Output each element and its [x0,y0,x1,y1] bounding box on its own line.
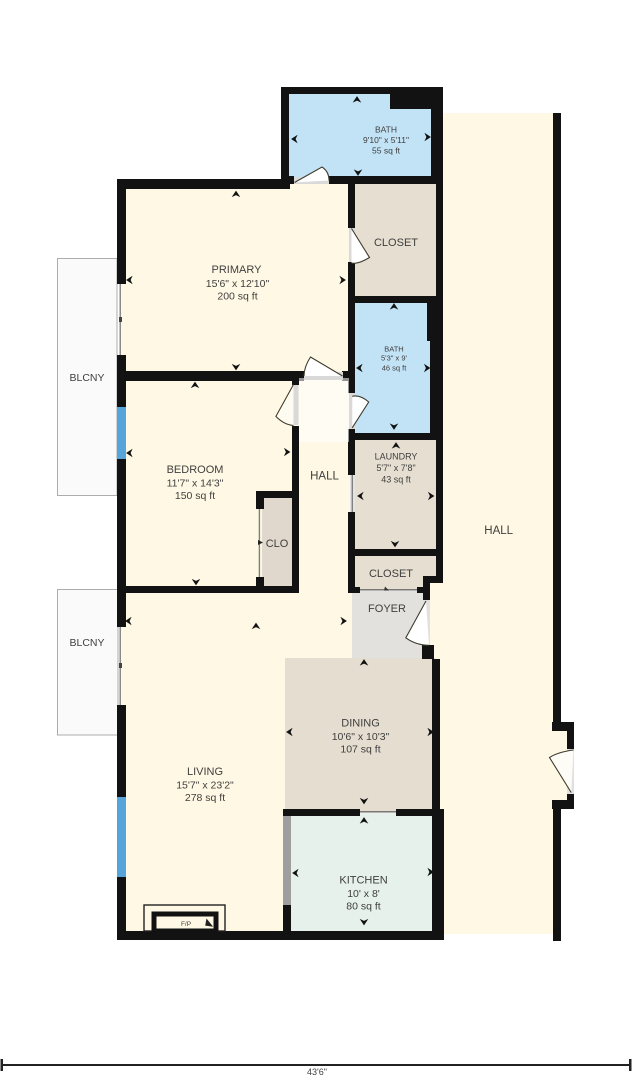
svg-text:KITCHEN: KITCHEN [339,875,387,887]
svg-text:107 sq ft: 107 sq ft [340,744,380,756]
svg-text:15'7" x 23'2": 15'7" x 23'2" [176,780,234,792]
svg-text:5'7" x 7'8": 5'7" x 7'8" [376,463,415,473]
svg-text:80 sq ft: 80 sq ft [346,901,381,913]
svg-text:5'3" x 9': 5'3" x 9' [381,354,408,363]
svg-text:PRIMARY: PRIMARY [212,264,263,276]
svg-text:HALL: HALL [310,471,339,483]
svg-text:BLCNY: BLCNY [69,637,104,649]
svg-text:LAUNDRY: LAUNDRY [375,452,418,462]
svg-text:LIVING: LIVING [187,766,223,778]
svg-text:11'7" x 14'3": 11'7" x 14'3" [167,478,224,490]
svg-text:CLOSET: CLOSET [369,568,413,580]
svg-text:CLOSET: CLOSET [374,237,418,249]
svg-text:DINING: DINING [341,718,380,730]
svg-text:278 sq ft: 278 sq ft [185,792,225,804]
svg-text:43 sq ft: 43 sq ft [381,475,411,485]
svg-text:BATH: BATH [375,125,397,135]
svg-text:BATH: BATH [384,345,403,354]
svg-text:9'10" x 5'11": 9'10" x 5'11" [363,135,409,145]
svg-text:BEDROOM: BEDROOM [167,464,224,476]
svg-text:10' x 8': 10' x 8' [347,888,380,900]
svg-text:15'6" x 12'10": 15'6" x 12'10" [206,278,270,290]
svg-text:F/P: F/P [181,921,191,928]
svg-text:CLO: CLO [266,538,289,550]
svg-text:BLCNY: BLCNY [69,372,104,384]
svg-text:43'6": 43'6" [307,1067,327,1077]
svg-text:200 sq ft: 200 sq ft [217,291,257,303]
svg-text:46 sq ft: 46 sq ft [382,364,408,373]
svg-text:55 sq ft: 55 sq ft [372,146,401,156]
svg-text:150 sq ft: 150 sq ft [175,490,215,502]
svg-text:10'6" x 10'3": 10'6" x 10'3" [332,731,390,743]
svg-text:FOYER: FOYER [368,603,406,615]
svg-text:HALL: HALL [484,525,513,537]
